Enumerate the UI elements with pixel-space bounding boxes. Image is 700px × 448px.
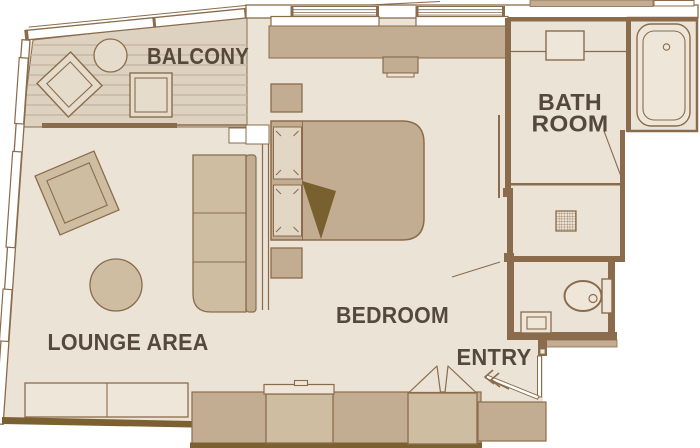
balcony-table bbox=[94, 39, 127, 72]
label-lounge: LOUNGE AREA bbox=[48, 329, 209, 355]
tv-unit bbox=[383, 57, 418, 73]
sofa bbox=[193, 155, 246, 312]
window-sill-1 bbox=[271, 17, 379, 28]
wc-basin bbox=[521, 312, 551, 333]
bathroom-left-wall bbox=[505, 18, 511, 196]
entry-vestibule-wall bbox=[478, 402, 546, 441]
floor-plan: BALCONY BATH ROOM BEDROOM LOUNGE AREA EN… bbox=[0, 0, 700, 448]
balcony-stool bbox=[130, 73, 172, 117]
nightstand-top bbox=[271, 84, 302, 112]
door-frame bbox=[538, 356, 542, 397]
shower-top-wall bbox=[508, 183, 625, 186]
toilet bbox=[565, 279, 613, 313]
bathroom-sliding-door bbox=[498, 115, 500, 198]
sideboard bbox=[25, 383, 188, 417]
tv-cabinet bbox=[264, 381, 334, 444]
sofa-back bbox=[246, 155, 256, 312]
floor-plan-canvas: BALCONY BATH ROOM BEDROOM LOUNGE AREA EN… bbox=[0, 0, 700, 448]
coffee-table bbox=[90, 259, 142, 311]
pillow-1 bbox=[274, 127, 302, 179]
window-top-right bbox=[654, 1, 694, 7]
label-entry: ENTRY bbox=[457, 344, 532, 370]
label-bedroom: BEDROOM bbox=[336, 302, 449, 328]
pillow-2 bbox=[274, 185, 302, 236]
label-bathroom-line2: ROOM bbox=[532, 111, 609, 137]
top-right-wall-band bbox=[530, 0, 653, 7]
shower-bottom-wall bbox=[507, 256, 625, 262]
balcony-door-threshold bbox=[42, 123, 177, 128]
window-sill-2 bbox=[416, 17, 508, 28]
shower-drain bbox=[556, 211, 576, 231]
bathtub bbox=[628, 18, 697, 131]
label-balcony: BALCONY bbox=[147, 43, 249, 69]
vanity-sink bbox=[546, 31, 584, 60]
nightstand-bottom bbox=[271, 248, 302, 278]
